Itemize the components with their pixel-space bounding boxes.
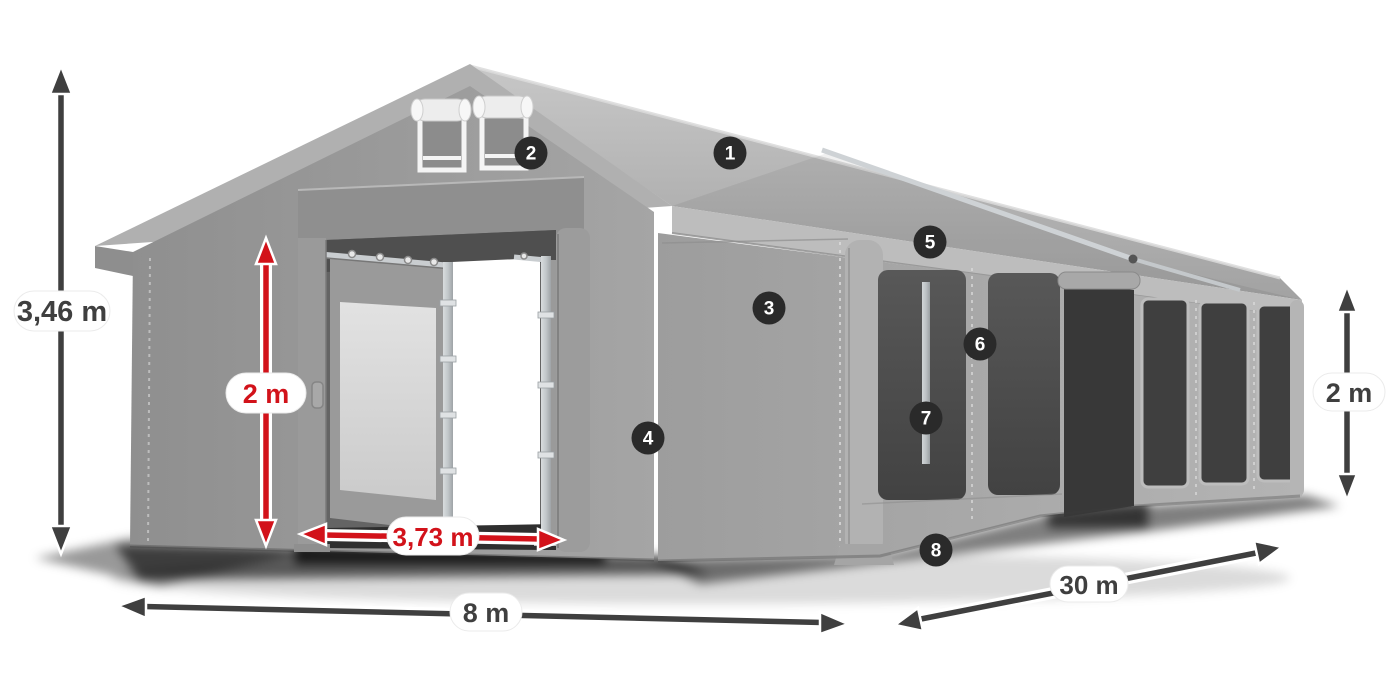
dimension-label: 2 m [243, 379, 290, 409]
pole-clip [538, 312, 554, 318]
pole-clip [440, 356, 456, 362]
arrowhead-left [118, 596, 146, 618]
marker-number: 1 [725, 144, 736, 165]
door-curtain-left [326, 251, 458, 543]
pole-clip [440, 412, 456, 418]
dimension-label: 3,73 m [393, 522, 474, 552]
vent-frame [420, 118, 464, 170]
side-window-3 [1142, 299, 1188, 487]
curtain-hook [349, 251, 356, 258]
corner-column [845, 240, 883, 556]
window-pole [922, 282, 930, 464]
side-window-2 [988, 273, 1060, 495]
side-rolled-curtain [1058, 272, 1140, 289]
dimension-label: 2 m [1326, 378, 1373, 408]
curtain-hook [521, 253, 527, 259]
pole-clip [538, 382, 554, 388]
marker-number: 5 [925, 233, 936, 254]
left-eave-fascia [95, 246, 133, 276]
marker-number: 3 [764, 299, 775, 320]
doorway-seethrough [452, 258, 540, 530]
marker-6: 6 [964, 328, 997, 361]
arrowhead-down [1337, 474, 1357, 500]
marker-number: 2 [526, 144, 537, 165]
curtain-hook [431, 259, 438, 266]
arrowhead-right [820, 612, 848, 634]
marker-number: 4 [643, 429, 654, 450]
vent-roll-cap [521, 96, 533, 118]
vent-roll-cap [473, 96, 485, 118]
dimension-total-height: 3,46 m [14, 66, 110, 554]
side-window-4 [1200, 302, 1248, 484]
vent-roll-cap [459, 99, 471, 121]
marker-1: 1 [714, 137, 747, 170]
far-edge-column [1290, 300, 1304, 497]
arrowhead-down [50, 526, 72, 554]
marker-2: 2 [515, 137, 548, 170]
entrance-post-right [556, 228, 590, 552]
marker-7: 7 [910, 402, 943, 435]
door-handle [312, 382, 323, 408]
curtain-window [340, 302, 436, 500]
curtain-pole [541, 256, 551, 542]
pole-clip [440, 468, 456, 474]
side-opening [1064, 282, 1134, 517]
marker-number: 6 [975, 335, 986, 356]
curtain-hook [405, 257, 412, 264]
vent-roll-cap [411, 99, 423, 121]
curtain-hook [377, 254, 384, 261]
marker-3: 3 [753, 292, 786, 325]
dimension-side-height: 2 m [1313, 286, 1385, 500]
pole-clip [538, 452, 554, 458]
marker-number: 8 [931, 541, 942, 562]
dimension-label: 3,46 m [17, 296, 107, 328]
marker-5: 5 [914, 226, 947, 259]
arrowhead-left [895, 608, 923, 631]
diagram-canvas: 3,46 m 2 m 3,73 m 8 m 30 m [0, 0, 1400, 700]
marker-number: 7 [921, 409, 932, 430]
tent-dimension-diagram: 3,46 m 2 m 3,73 m 8 m 30 m [0, 0, 1400, 700]
pole-clip [440, 300, 456, 306]
marker-4: 4 [632, 422, 665, 455]
dimension-label: 30 m [1059, 570, 1118, 600]
marker-8: 8 [920, 534, 953, 567]
arrowhead-up [1337, 286, 1357, 312]
gable-vent-left [411, 99, 471, 170]
rail-connector [1129, 255, 1138, 264]
arrowhead-up [50, 66, 72, 94]
arrowhead-right [1254, 541, 1282, 564]
dimension-label: 8 m [463, 598, 510, 628]
